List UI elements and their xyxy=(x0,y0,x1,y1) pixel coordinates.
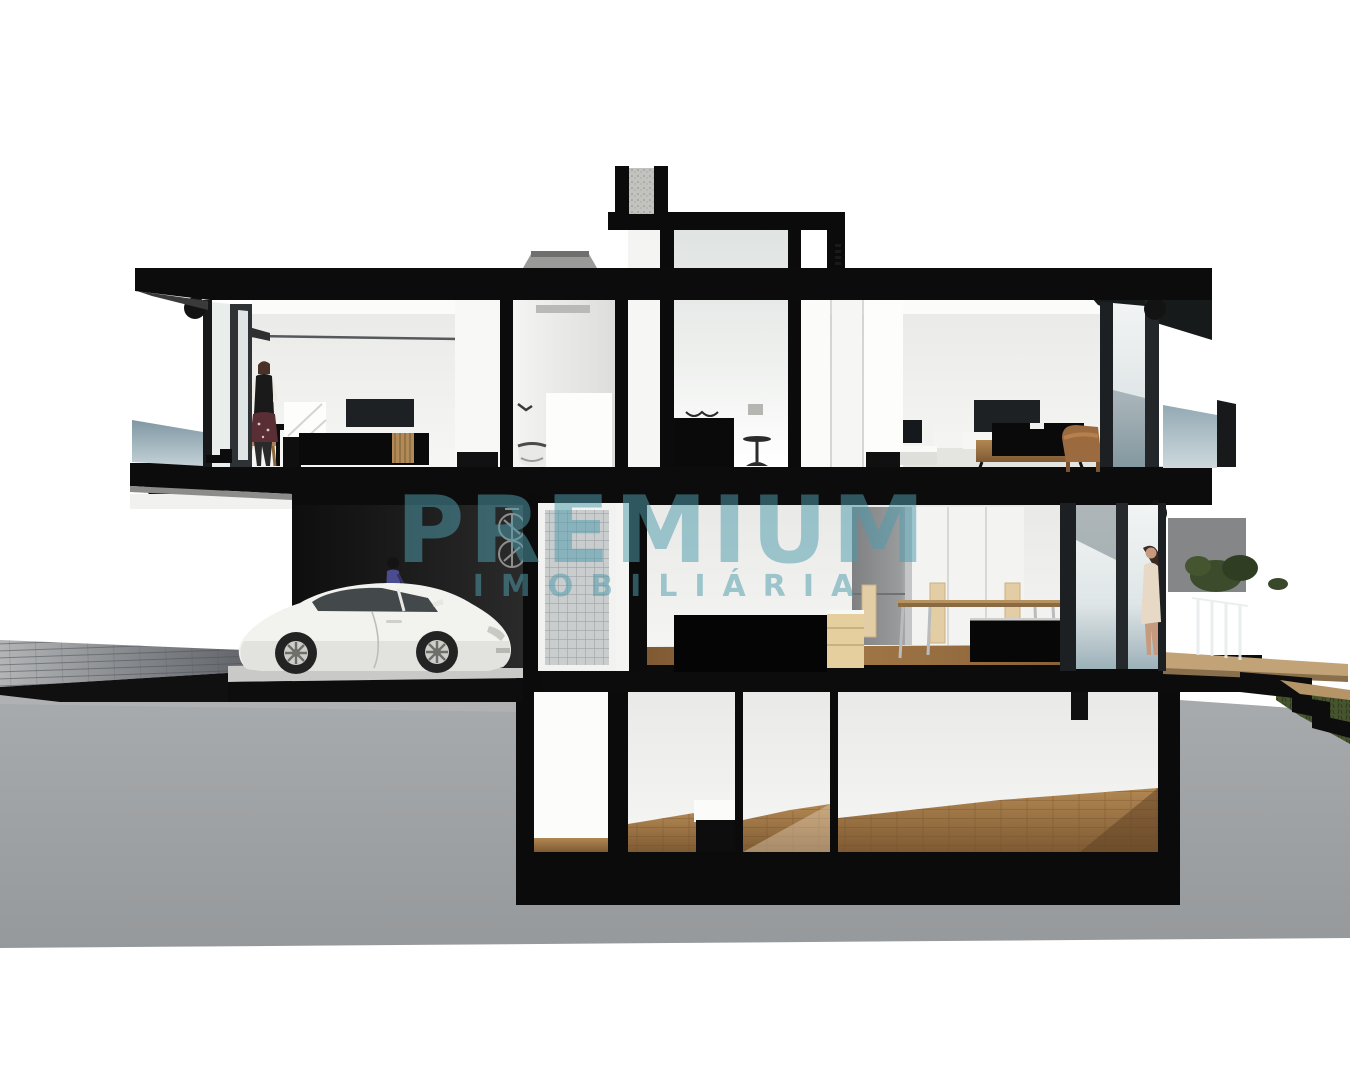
basement-room1-stair-block xyxy=(696,820,735,852)
car-front-trim xyxy=(496,648,510,653)
bathroom xyxy=(513,298,615,467)
closet-base-shadow xyxy=(866,452,900,467)
watermark-line2: IMOBILIÁRIA xyxy=(473,568,872,604)
roof-skylight-top xyxy=(531,251,589,257)
island-front-black xyxy=(970,618,1060,662)
basement-hall-floor xyxy=(534,838,608,852)
watermark-line1: PREMIUM xyxy=(396,476,930,584)
architectural-section-render: PREMIUM IMOBILIÁRIA xyxy=(0,0,1350,1080)
chimney xyxy=(615,166,668,214)
basement-wall-2 xyxy=(830,688,838,852)
right-balcony-edge xyxy=(1217,400,1236,467)
car-rear-spokes xyxy=(285,642,307,664)
kitchen-counter-cut xyxy=(674,615,827,672)
tower-face-white xyxy=(628,228,660,270)
basement-hall-door xyxy=(534,688,608,852)
wall-bath-hall xyxy=(615,298,628,467)
hall-wall-strip xyxy=(628,298,660,467)
watermark: PREMIUM IMOBILIÁRIA xyxy=(396,476,930,604)
terrace-glass-railing xyxy=(1192,598,1248,660)
car-front-spokes xyxy=(426,641,448,663)
basement xyxy=(516,655,1180,905)
section-drawing: PREMIUM IMOBILIÁRIA xyxy=(0,0,1350,1080)
left-tv xyxy=(346,399,414,427)
basement-room3-window xyxy=(1071,692,1088,720)
right-balcony-glass-railing xyxy=(1163,405,1217,468)
bathroom-half-wall xyxy=(546,393,612,467)
roof-slab-black xyxy=(135,268,1212,300)
island-top-line xyxy=(970,618,1060,621)
left-balcony-glass-railing xyxy=(132,420,203,466)
wardrobe-base-shadow xyxy=(457,452,498,467)
basement-room1-stair-ledge xyxy=(694,800,735,822)
tower-right-wall xyxy=(788,228,801,467)
toilet xyxy=(518,444,546,467)
right-glass-wall xyxy=(1100,300,1159,467)
stair-wall-frame xyxy=(748,404,763,415)
wood-drawer-unit xyxy=(827,610,864,668)
basement-wall-1 xyxy=(735,688,743,852)
bathroom-ceiling-light xyxy=(536,305,590,313)
right-desk-computer xyxy=(900,413,937,465)
wardrobe-column xyxy=(455,300,500,467)
stair-parapet-black xyxy=(674,418,734,467)
tower-left-wall-lower xyxy=(660,298,674,467)
wall-bedroom-bath xyxy=(500,298,513,467)
car-door-handle xyxy=(386,620,402,623)
stair-closets xyxy=(800,290,903,467)
terrace-glass-panel xyxy=(1268,608,1300,652)
garage-floor-slab xyxy=(228,678,523,702)
left-glass-wall xyxy=(203,300,252,467)
tower-top-slab xyxy=(608,212,845,230)
left-nightstand xyxy=(283,437,301,467)
